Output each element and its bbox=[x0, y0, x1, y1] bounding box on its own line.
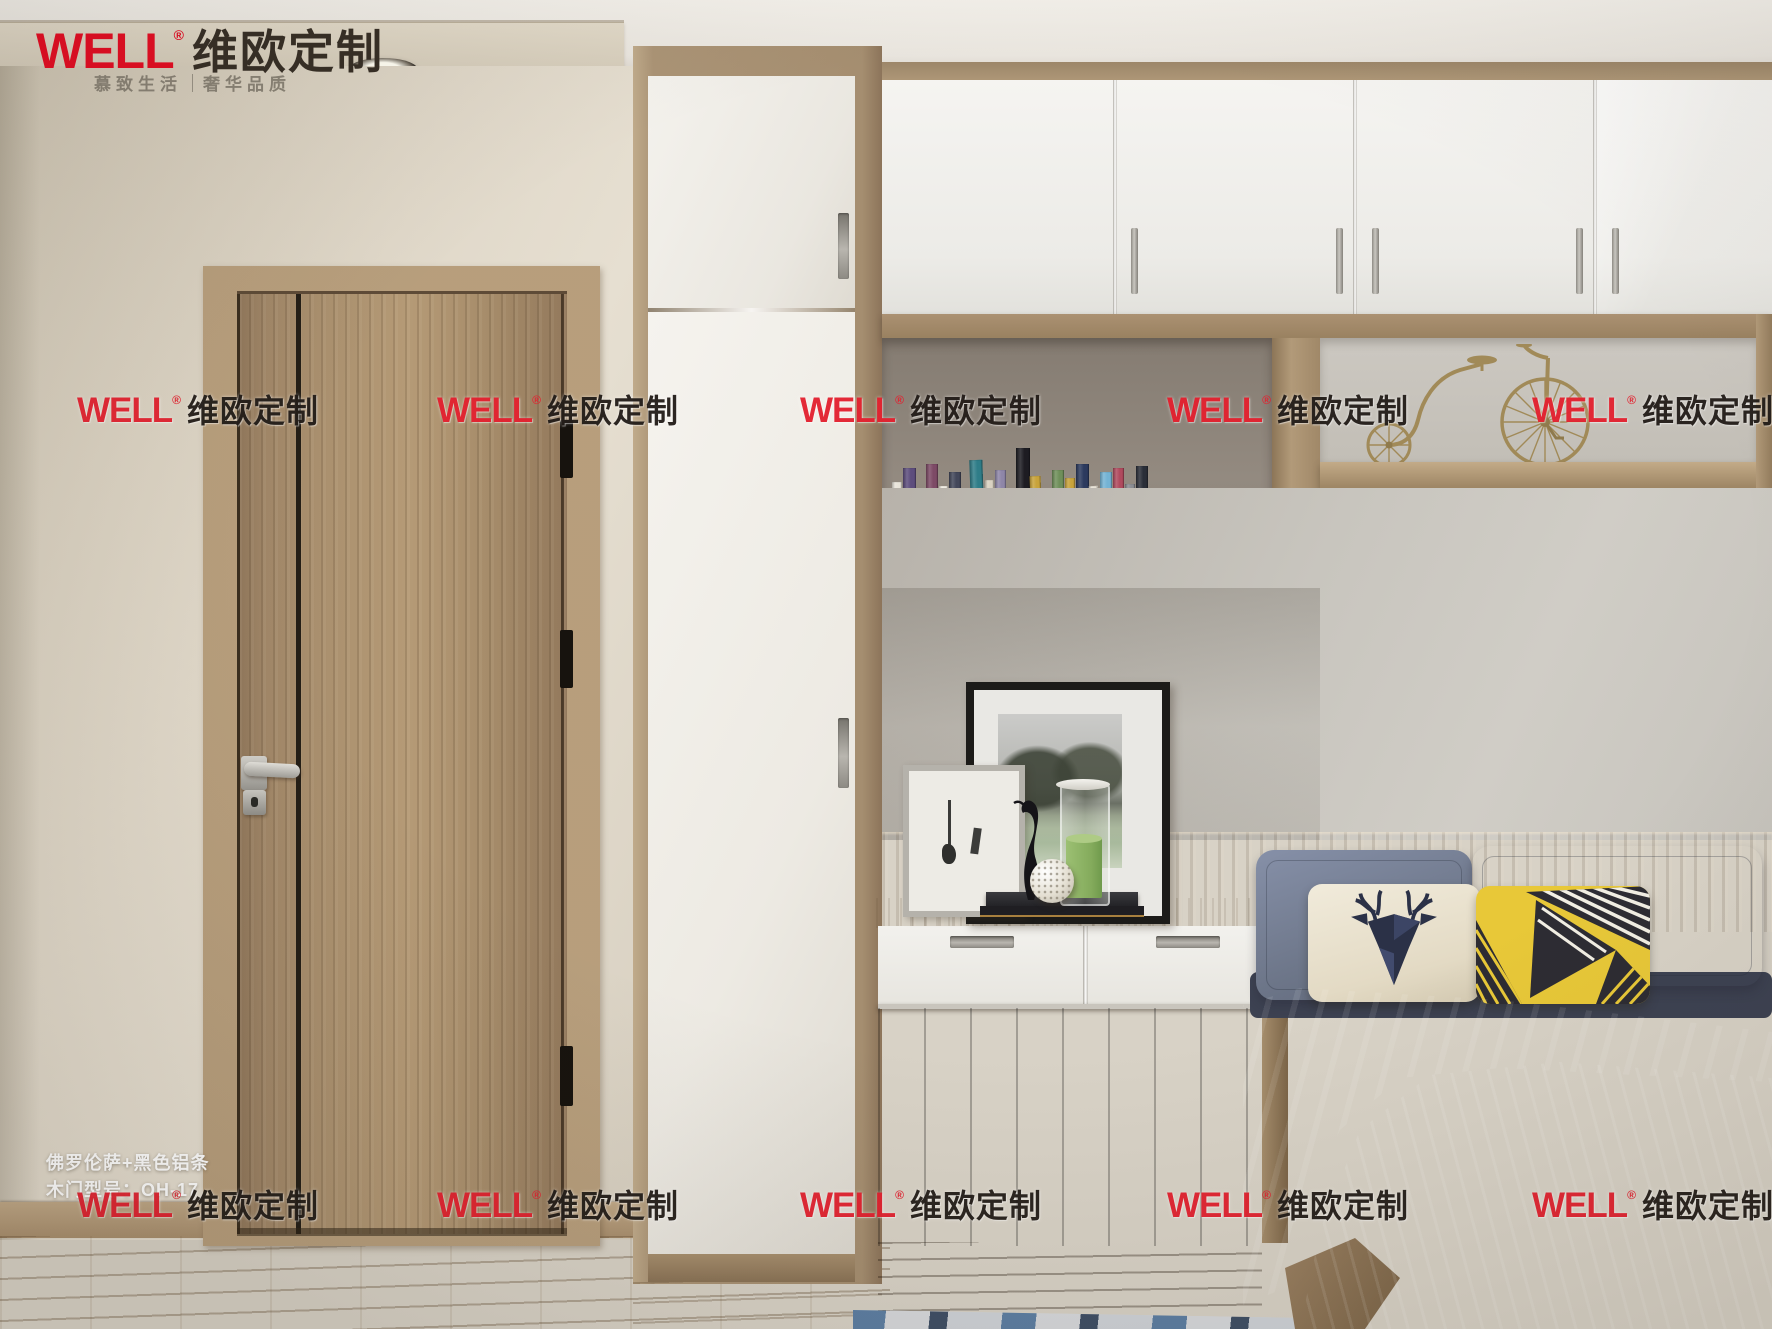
magazine-stack-lower bbox=[980, 906, 1144, 917]
brand-watermark: WELL®维欧定制 bbox=[77, 1181, 319, 1227]
door-black-aluminum-strip bbox=[296, 294, 301, 1234]
brand-watermark: WELL®维欧定制 bbox=[800, 1181, 1042, 1227]
drawer-handle bbox=[1156, 936, 1220, 948]
door-top-gap bbox=[237, 291, 567, 294]
cabinet-door-gap bbox=[1593, 80, 1597, 316]
wardrobe-top-door bbox=[648, 76, 855, 308]
brand-watermark: WELL®维欧定制 bbox=[437, 386, 679, 432]
wardrobe-plinth bbox=[648, 1254, 855, 1282]
candle-holder-rim bbox=[1056, 779, 1110, 790]
registered-icon: ® bbox=[174, 27, 184, 43]
small-frame-art-blob bbox=[942, 844, 956, 864]
brand-watermark: WELL®维欧定制 bbox=[1532, 1181, 1772, 1227]
small-frame-art-mark bbox=[948, 800, 951, 848]
door-handle-lever bbox=[244, 762, 301, 779]
brand-watermark: WELL®维欧定制 bbox=[1532, 386, 1772, 432]
brand-tagline: 慕致生活 奢华品质 bbox=[94, 70, 291, 95]
wardrobe-main-handle bbox=[838, 718, 849, 788]
brand-watermark: WELL®维欧定制 bbox=[437, 1181, 679, 1227]
wardrobe-top-handle bbox=[838, 213, 849, 279]
tagline-right: 奢华品质 bbox=[203, 70, 291, 95]
cabinet-door-gap bbox=[1113, 80, 1117, 316]
candle-top bbox=[1066, 834, 1102, 843]
brand-watermark: WELL®维欧定制 bbox=[1167, 386, 1409, 432]
door-hinge-icon bbox=[560, 1046, 573, 1106]
wardrobe-main-door bbox=[648, 312, 855, 1254]
cabinet-door-gap bbox=[1353, 80, 1357, 316]
brand-watermark: WELL®维欧定制 bbox=[77, 386, 319, 432]
drawer-gap bbox=[1083, 926, 1088, 1006]
cabinet-handle bbox=[1372, 228, 1379, 294]
wardrobe-floor-shadow bbox=[633, 1282, 882, 1329]
cabinet-handle bbox=[1336, 228, 1343, 294]
keyhole-icon bbox=[251, 797, 258, 807]
tagline-left: 慕致生活 bbox=[94, 70, 182, 95]
caption-line1: 佛罗伦萨+黑色铝条 bbox=[46, 1150, 210, 1177]
tagline-divider bbox=[192, 74, 193, 92]
door-hinge-icon bbox=[560, 630, 573, 688]
spiky-ball-ornament bbox=[1030, 859, 1074, 903]
cabinet-handle bbox=[1576, 228, 1583, 294]
drawer-handle bbox=[950, 936, 1014, 948]
cabinet-top-rail bbox=[882, 62, 1772, 82]
cabinet-handle bbox=[1612, 228, 1619, 294]
door-bottom-shadow bbox=[237, 1228, 567, 1236]
door-gap-left bbox=[237, 294, 240, 1234]
cabinet-door-sheen bbox=[1595, 80, 1772, 316]
cabinet-bottom-band bbox=[882, 314, 1772, 340]
display-shelf-bottom bbox=[1320, 462, 1772, 490]
bedroom-render: 佛罗伦萨+黑色铝条 木门型号：OH-17 WELL®维欧定制 慕致生活 奢华品质… bbox=[0, 0, 1772, 1329]
deer-head-icon bbox=[1334, 888, 1454, 1000]
pillow-yellow-geometric bbox=[1476, 886, 1650, 1004]
brand-watermark: WELL®维欧定制 bbox=[1167, 1181, 1409, 1227]
cabinet-handle bbox=[1131, 228, 1138, 294]
brand-watermark: WELL®维欧定制 bbox=[800, 386, 1042, 432]
wall-left-corner-shade bbox=[0, 66, 40, 1240]
